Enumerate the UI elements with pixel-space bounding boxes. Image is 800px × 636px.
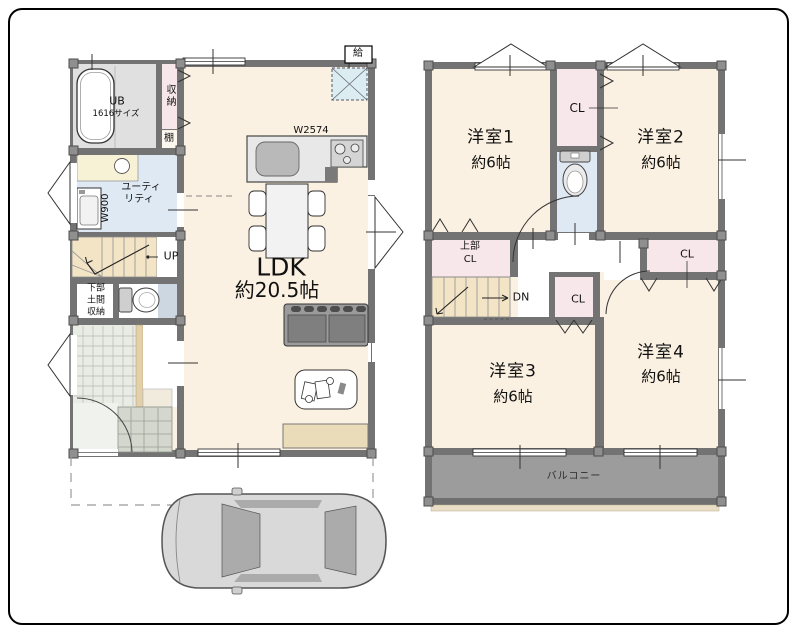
label-stairs-up: UP bbox=[164, 251, 179, 262]
car-side-window bbox=[234, 500, 322, 508]
label-stairs-down: DN bbox=[513, 292, 530, 303]
car bbox=[162, 488, 386, 594]
label-understair-1: 下部 bbox=[87, 285, 105, 294]
tv-board bbox=[283, 424, 368, 448]
label-ldk-size: 約20.5帖 bbox=[235, 280, 320, 300]
label-closet-top: CL bbox=[569, 102, 584, 114]
car-mirror bbox=[232, 587, 242, 594]
floor2-plan bbox=[424, 44, 746, 511]
chair bbox=[249, 191, 266, 216]
stairs-1f bbox=[72, 237, 177, 277]
casement-window-left-1 bbox=[48, 162, 70, 224]
hall-2f bbox=[518, 240, 640, 272]
label-upper-closet-1: 上部 bbox=[460, 242, 480, 252]
car-rear-window bbox=[325, 506, 356, 575]
porch-tiles bbox=[118, 407, 172, 452]
casement-window-left-2 bbox=[48, 334, 70, 396]
entrance-step bbox=[143, 389, 172, 407]
label-shelf: 棚 bbox=[164, 134, 174, 144]
label-supply: 給 bbox=[353, 49, 363, 59]
chair bbox=[308, 191, 325, 216]
label-upper-closet-2: CL bbox=[464, 255, 477, 265]
dining-table bbox=[266, 184, 308, 258]
label-ub-size: 1616サイズ bbox=[93, 110, 140, 119]
label-balcony: バルコニー bbox=[547, 472, 602, 482]
floorplan-canvas: UB 1616サイズ 収納 棚 ユーティ リティ W900 UP 下部 土間 収… bbox=[0, 0, 800, 636]
label-room4-size: 約6帖 bbox=[641, 370, 681, 385]
label-room4: 洋室4 bbox=[637, 345, 685, 362]
label-room1: 洋室1 bbox=[467, 130, 515, 147]
chair bbox=[308, 226, 325, 251]
car-windshield bbox=[222, 504, 260, 577]
label-utility-1: ユーティ bbox=[121, 183, 160, 193]
label-room3-size: 約6帖 bbox=[493, 390, 533, 405]
stairs-2f bbox=[432, 277, 512, 319]
balcony bbox=[425, 455, 725, 511]
label-closet-1f: 収納 bbox=[164, 84, 174, 108]
coffee-table bbox=[295, 370, 357, 409]
car-side-window bbox=[234, 574, 322, 582]
label-closet-mid: CL bbox=[571, 294, 585, 305]
label-room2: 洋室2 bbox=[637, 130, 685, 147]
label-ldk: LDK bbox=[256, 255, 306, 280]
label-closet-right: CL bbox=[680, 249, 694, 260]
label-washer-width: W900 bbox=[101, 194, 111, 223]
label-room2-size: 約6帖 bbox=[641, 156, 681, 171]
label-ub: UB bbox=[109, 96, 125, 107]
label-utility-2: リティ bbox=[124, 195, 153, 205]
bay-window-room1 bbox=[474, 44, 548, 67]
label-understair-2: 土間 bbox=[87, 297, 105, 306]
sofa bbox=[284, 304, 368, 346]
car-mirror bbox=[232, 488, 242, 495]
label-room3: 洋室3 bbox=[489, 364, 537, 381]
kitchen-sink bbox=[256, 142, 299, 176]
floor1-plan bbox=[48, 46, 403, 594]
washbasin-bowl bbox=[115, 159, 130, 174]
toilet-counter-1f bbox=[158, 284, 177, 318]
toilet-1f bbox=[119, 288, 159, 312]
label-room1-size: 約6帖 bbox=[471, 156, 511, 171]
entrance-tiles bbox=[73, 325, 177, 452]
label-kitchen-width: W2574 bbox=[293, 126, 328, 136]
chair bbox=[249, 226, 266, 251]
shoe-cabinet bbox=[136, 325, 143, 407]
label-understair-3: 収納 bbox=[87, 309, 105, 318]
